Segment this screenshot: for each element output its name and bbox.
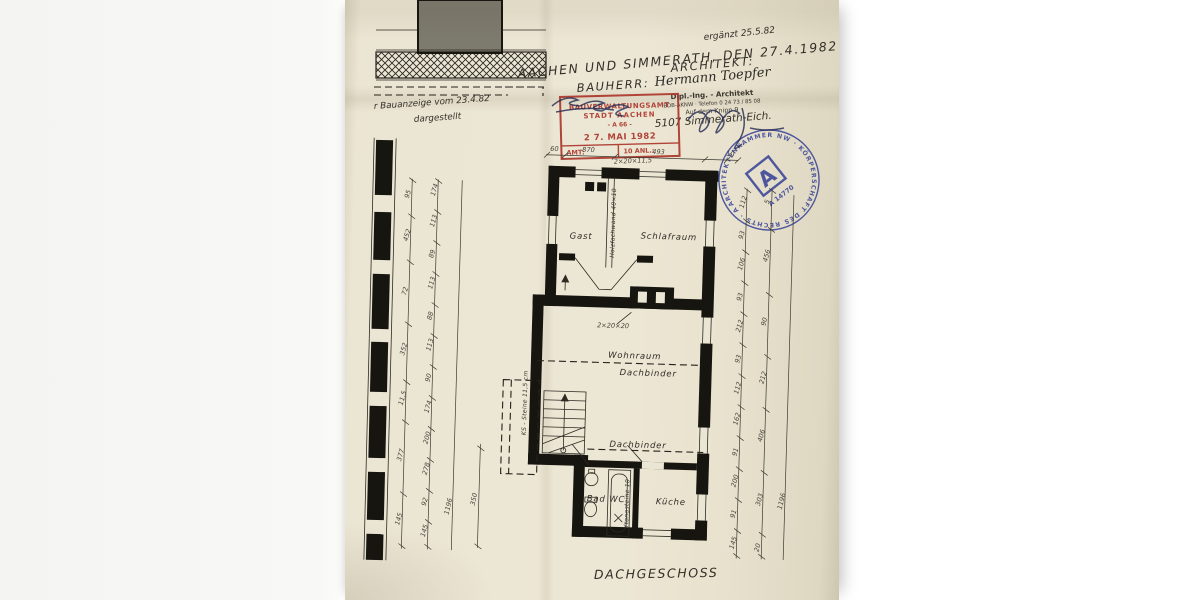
dim-bad-height: 350 (469, 492, 479, 506)
dim-right-outer-3: 212 (758, 371, 769, 385)
dim-top-3: 10 (726, 150, 735, 158)
room-label-gast: Gast (569, 231, 592, 242)
dim-right-inner-9: 200 (729, 474, 740, 488)
dim-left-inner-0: 174 (429, 183, 440, 197)
dim-left-inner-3: 113 (426, 276, 437, 290)
label-chimney-size: 2×20×20 (597, 321, 629, 330)
dim-left-inner-9: 278 (421, 462, 432, 476)
dim-left-inner-5: 113 (424, 338, 435, 352)
dim-left-outer-4: 11,5 (397, 390, 409, 406)
amendment-note: ergänzt 25.5.82 (703, 26, 776, 43)
stamp-department-code: - A 66 - (608, 121, 633, 129)
dim-top-1: 870 (582, 146, 595, 154)
room-label-wohnraum: Wohnraum (608, 351, 661, 363)
dim-right-inner-11: 145 (728, 536, 739, 550)
plan-scan: ergänzt 25.5.82 AACHEN UND SIMMERATH, DE… (0, 0, 1200, 600)
stamp-date: 2 7. MAI 1982 (584, 131, 657, 143)
floor-title: DACHGESCHOSS (594, 565, 719, 582)
dim-left-inner-7: 174 (423, 400, 434, 414)
dim-left-outer-5: 377 (395, 447, 406, 462)
room-label-bad: Bad WC (587, 494, 626, 505)
dim-right-inner-6: 112 (732, 381, 743, 395)
dim-left-inner-11: 145 (419, 524, 430, 538)
dim-left-inner-1: 113 (428, 214, 439, 228)
dim-right-outer-4: 406 (756, 428, 767, 442)
dim-right-inner-4: 212 (734, 319, 745, 333)
label-holzfachwand: Holzfachwand 40×10 (609, 188, 618, 258)
dim-left-outer-6: 145 (393, 512, 404, 526)
dim-top-2: 493 (652, 148, 665, 156)
dim-left-outer-3: 352 (398, 342, 409, 356)
dim-right-total: 1196 (776, 492, 788, 510)
dim-right-inner-0: 112 (738, 195, 749, 209)
dim-right-outer-5: 303 (754, 492, 765, 506)
sink-icon (585, 473, 598, 486)
dim-top-0: 60 (550, 145, 559, 153)
stamp-anl-label: 10 ANL.: (623, 147, 654, 156)
dim-left-inner-8: 200 (422, 431, 433, 445)
dim-right-inner-2: 106 (736, 257, 747, 271)
adjacent-drawing-left-wall (364, 138, 396, 560)
dim-right-inner-7: 162 (731, 412, 742, 426)
label-ks-steine: KS - Steine 11,5 cm (521, 370, 530, 435)
adjacent-drawing-top (374, 0, 546, 96)
left-note-line2: dargestellt (414, 112, 463, 125)
dim-left-outer-1: 452 (402, 228, 413, 242)
label-dachbinder-upper: Dachbinder (619, 368, 676, 380)
truss-line-upper (537, 361, 698, 366)
floor-plan: Gast Schlafraum Wohnraum Bad WC Küche Da… (392, 141, 797, 560)
room-label-kueche: Küche (656, 497, 686, 508)
label-ytongsteine: Ytongsteine 10 (623, 479, 631, 529)
bauherr-label: BAUHERR: (576, 76, 650, 95)
room-label-schlafraum: Schlafraum (641, 232, 698, 244)
label-dachbinder-lower: Dachbinder (609, 440, 666, 452)
dim-right-outer-1: 456 (761, 249, 772, 263)
left-note-line1: r Bauanzeige vom 23.4.82 (374, 94, 491, 112)
